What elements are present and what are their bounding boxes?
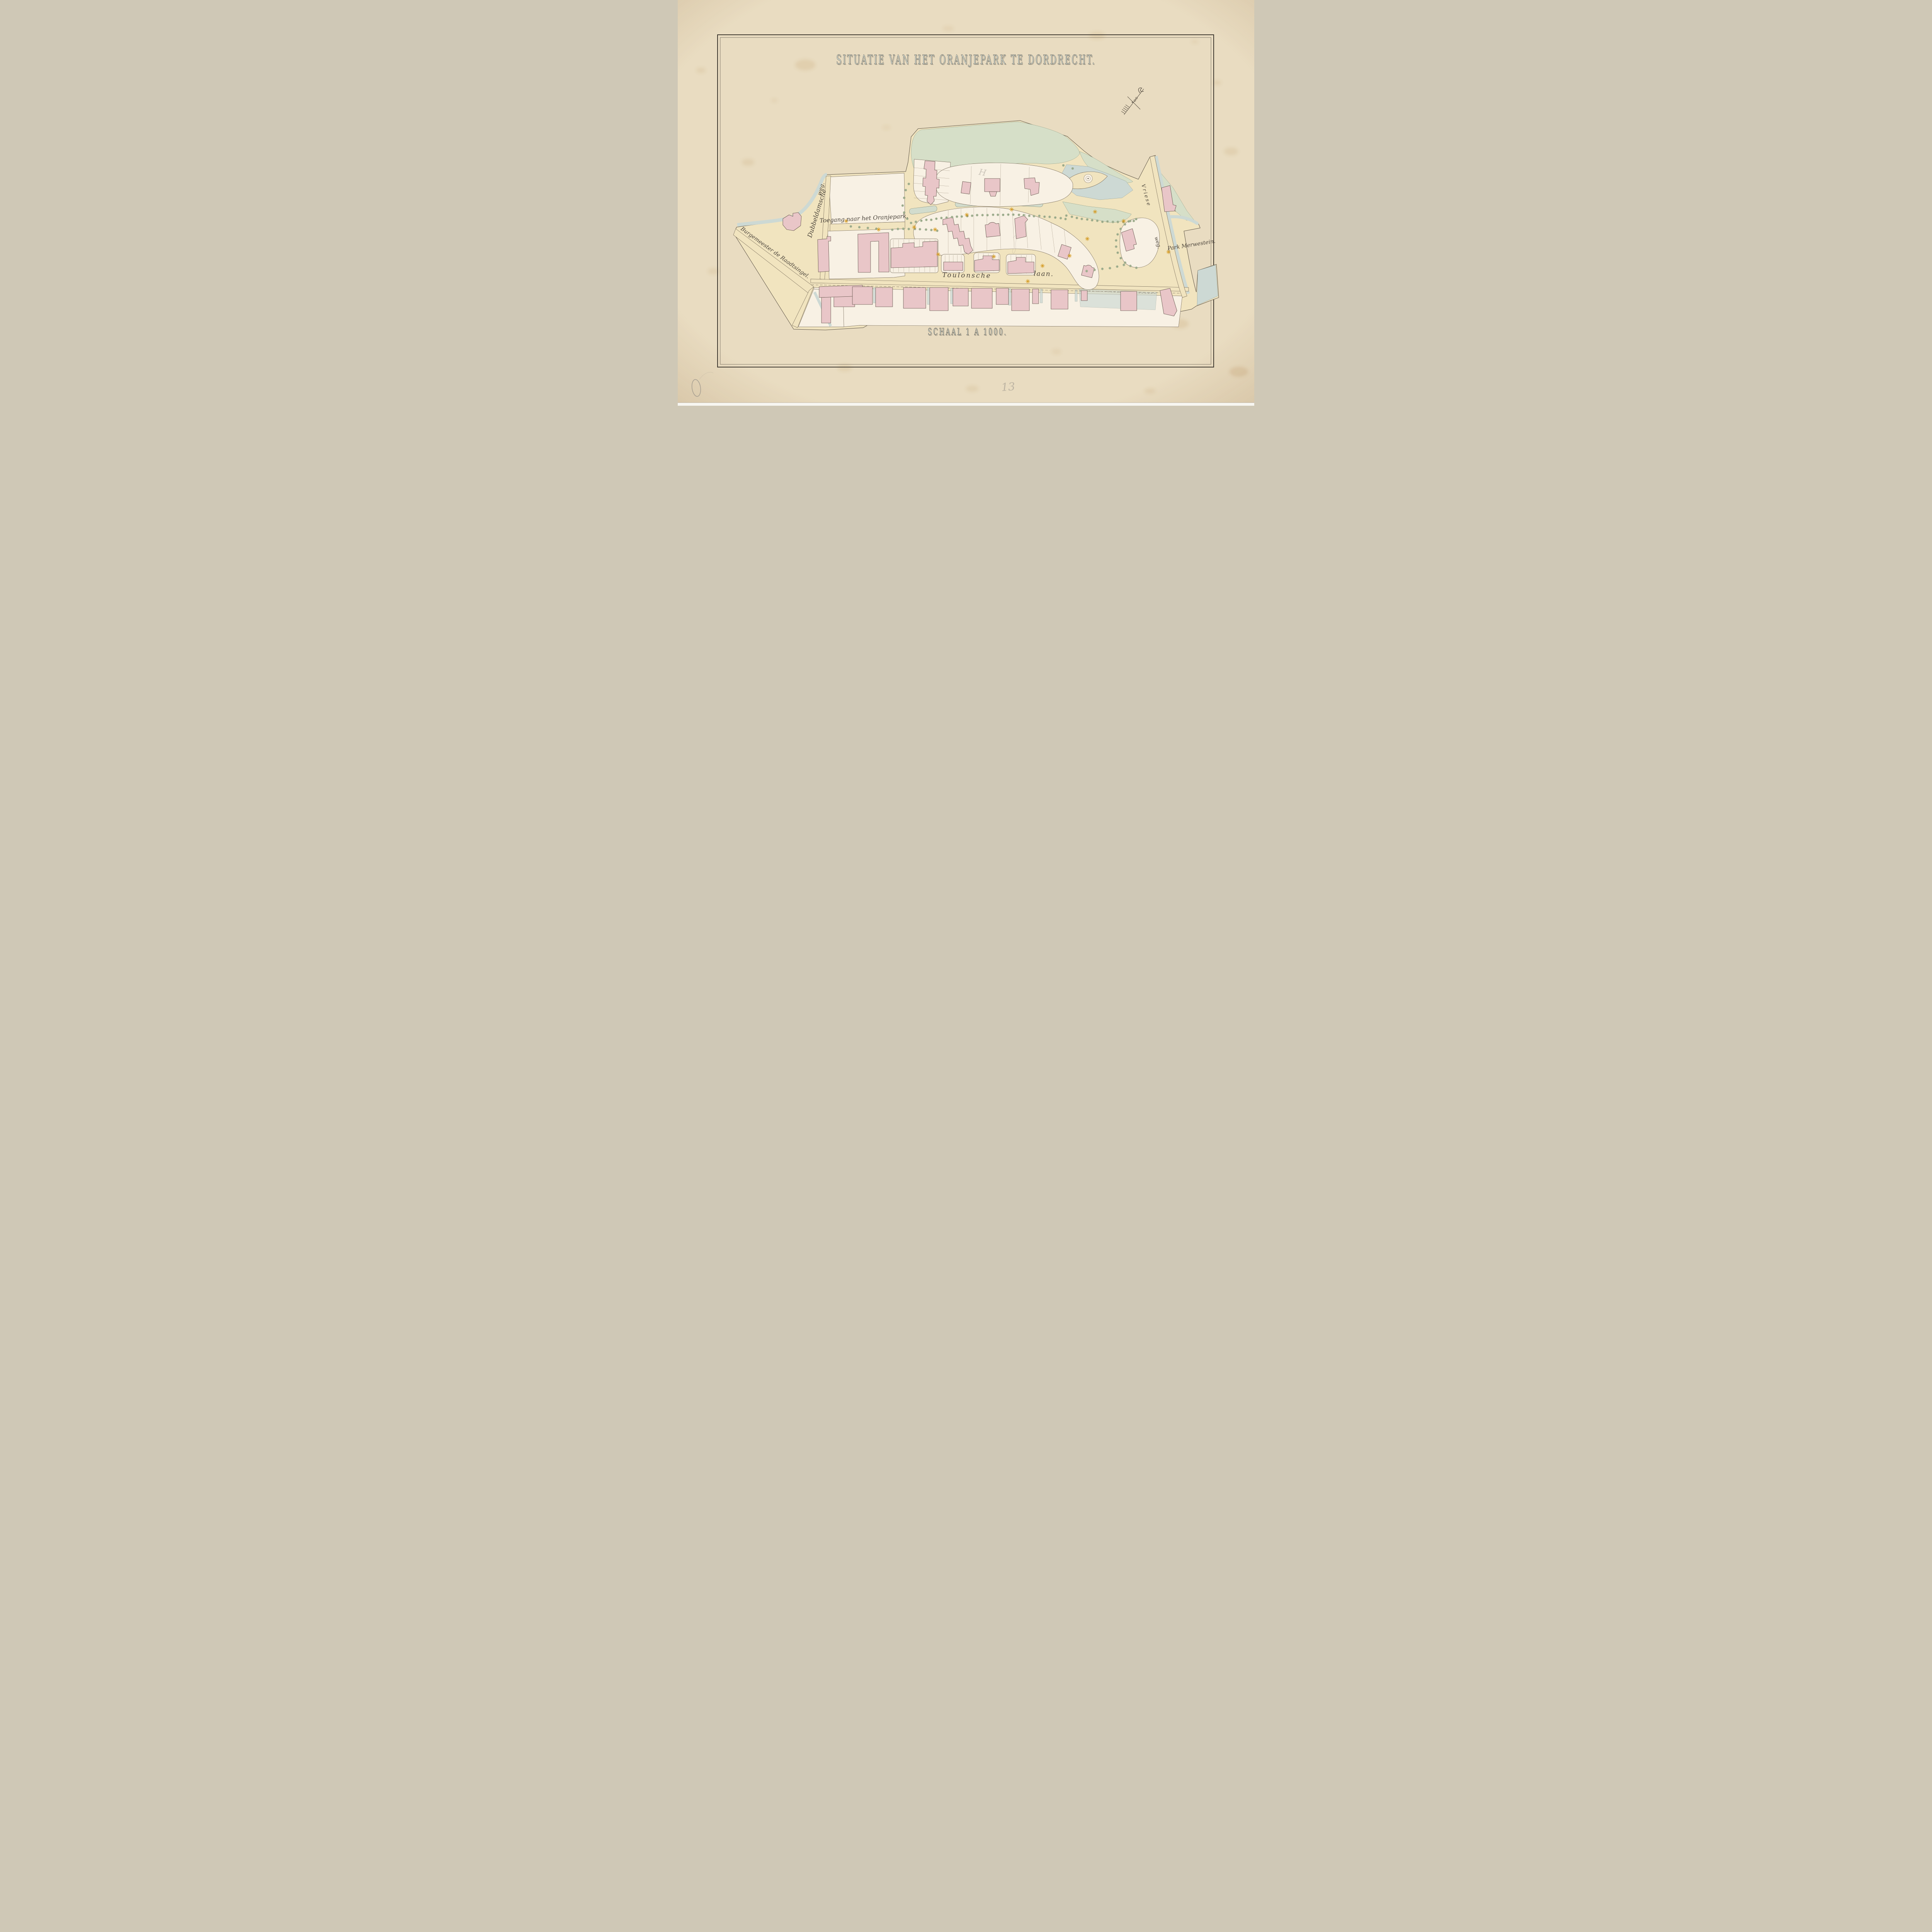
label-laan: laan. <box>1034 270 1054 278</box>
tree-icon <box>951 216 953 218</box>
tree-icon <box>1007 214 1010 216</box>
tree-icon <box>902 228 905 230</box>
tree-icon <box>1123 264 1125 266</box>
ornamental-tree-icon <box>1085 237 1089 241</box>
tree-icon <box>961 216 963 218</box>
tree-icon <box>1120 257 1122 259</box>
tree-icon <box>919 228 921 230</box>
tree-icon <box>908 228 910 230</box>
scale-label: SCHAAL 1 A 1000. <box>928 327 1007 337</box>
tree-icon <box>1124 262 1126 264</box>
tree-icon <box>1129 220 1131 222</box>
tree-icon <box>1033 215 1035 218</box>
building <box>1012 289 1029 311</box>
tree-icon <box>1018 214 1020 216</box>
tree-icon <box>1028 215 1031 217</box>
tree-icon <box>930 229 933 231</box>
garden-sliver <box>951 288 953 304</box>
tree-icon <box>1091 219 1094 221</box>
ornamental-tree-icon <box>1041 264 1044 268</box>
tree-icon <box>925 219 928 221</box>
building <box>1051 290 1068 309</box>
building <box>1121 291 1137 311</box>
ornamental-tree-icon <box>912 225 916 229</box>
tree-icon <box>930 219 932 221</box>
tree-icon <box>925 228 927 231</box>
garden-sliver <box>1009 288 1011 305</box>
tree-icon <box>1085 270 1088 272</box>
tree-icon <box>1076 217 1078 219</box>
scan-edge <box>678 403 1254 406</box>
tree-icon <box>1117 221 1119 223</box>
tree-icon <box>992 214 994 216</box>
tree-icon <box>910 222 912 224</box>
tree-icon <box>971 215 973 217</box>
tree-icon <box>891 229 893 231</box>
tree-icon <box>1112 221 1114 223</box>
tree-icon <box>1124 223 1126 226</box>
building <box>996 288 1009 304</box>
building-row-band <box>944 262 963 270</box>
ornamental-tree-icon <box>1093 210 1097 214</box>
ornamental-tree-icon <box>1122 219 1126 223</box>
garden-sliver <box>1075 290 1077 301</box>
tree-icon <box>1101 221 1104 223</box>
ornamental-tree-icon <box>936 252 940 256</box>
tree-icon <box>935 218 937 220</box>
tree-icon <box>1106 220 1109 223</box>
ornamental-tree-icon <box>933 228 937 231</box>
tree-icon <box>1065 218 1067 220</box>
building <box>971 288 992 308</box>
tree-icon <box>940 217 943 219</box>
building <box>930 287 948 311</box>
building <box>903 287 926 308</box>
ornamental-tree-icon <box>877 228 881 231</box>
tree-icon <box>915 221 917 223</box>
building-villa <box>961 182 971 194</box>
building <box>1081 291 1087 301</box>
tree-icon <box>850 225 852 228</box>
tree-icon <box>1129 265 1132 267</box>
tree-icon <box>1062 164 1065 167</box>
tree-icon <box>908 183 910 185</box>
fountain <box>1084 174 1092 183</box>
tree-icon <box>1023 214 1025 216</box>
tree-icon <box>1094 269 1096 271</box>
tree-icon <box>903 197 905 199</box>
tree-icon <box>858 226 861 228</box>
oranjepark-map-svg: SITUATIE VAN HET ORANJEPARK TE DORDRECHT… <box>678 0 1254 406</box>
tree-icon <box>1038 215 1041 217</box>
building <box>1032 289 1039 304</box>
tree-icon <box>1049 216 1051 218</box>
ornamental-tree-icon <box>992 255 996 259</box>
tree-icon <box>1101 268 1104 270</box>
building <box>821 294 831 323</box>
tree-icon <box>1071 167 1074 170</box>
garden-sliver <box>1040 289 1043 303</box>
ornamental-tree-icon <box>1026 279 1030 283</box>
tree-icon <box>1135 218 1138 220</box>
tree-icon <box>1002 214 1004 216</box>
ornamental-tree-icon <box>965 213 969 217</box>
tree-icon <box>897 228 899 230</box>
tree-icon <box>901 204 904 207</box>
tree-icon <box>1135 267 1138 269</box>
pencil-mark-number: 13 <box>1001 380 1015 394</box>
scanned-map-sheet: SITUATIE VAN HET ORANJEPARK TE DORDRECHT… <box>678 0 1254 406</box>
tree-icon <box>1096 219 1099 222</box>
ornamental-tree-icon <box>1010 207 1014 211</box>
building <box>852 287 872 304</box>
block-villas-north <box>935 163 1073 206</box>
ornamental-tree-icon <box>1068 254 1071 258</box>
tree-icon <box>1115 239 1117 241</box>
tree-icon <box>1116 265 1118 268</box>
tree-icon <box>976 214 978 216</box>
tree-icon <box>1043 216 1046 218</box>
tree-icon <box>1060 217 1062 219</box>
tree-icon <box>1115 246 1117 248</box>
building <box>953 288 968 306</box>
tree-icon <box>1109 267 1111 269</box>
tree-icon <box>1071 216 1073 218</box>
tree-icon <box>905 189 907 191</box>
tree-icon <box>867 227 869 229</box>
label-toulonsche: Toulonsche <box>942 271 991 280</box>
building <box>876 287 893 307</box>
tree-icon <box>1081 218 1083 220</box>
map-title: SITUATIE VAN HET ORANJEPARK TE DORDRECHT… <box>836 52 1096 68</box>
garden-sliver <box>873 287 876 303</box>
tree-icon <box>1054 216 1056 219</box>
tree-icon <box>1133 220 1135 222</box>
tree-icon <box>981 214 984 216</box>
tree-icon <box>1119 228 1122 230</box>
tree-icon <box>997 214 999 216</box>
tree-icon <box>946 216 948 219</box>
tree-icon <box>986 214 989 216</box>
tree-icon <box>1065 214 1068 217</box>
tree-icon <box>1117 252 1119 254</box>
garden-sliver <box>927 287 930 304</box>
tree-icon <box>1086 218 1088 221</box>
tree-icon <box>1117 233 1119 236</box>
tree-icon <box>1012 214 1015 216</box>
tree-icon <box>920 219 923 222</box>
tree-icon <box>956 216 958 218</box>
